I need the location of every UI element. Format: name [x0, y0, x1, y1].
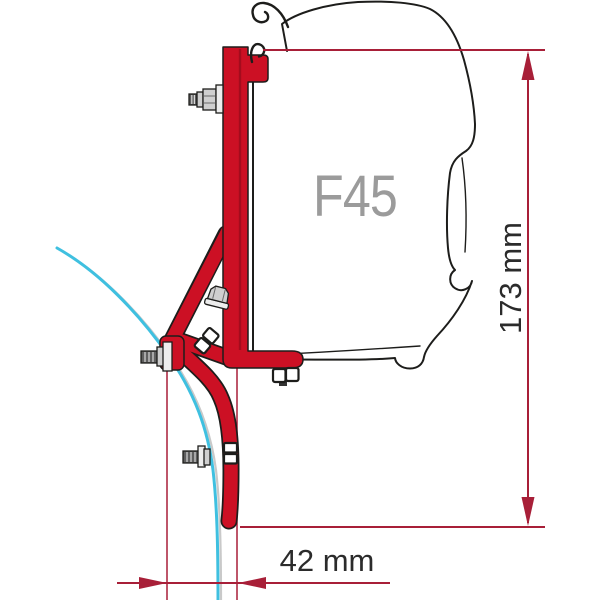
- awning-case-groove-line: [462, 158, 466, 252]
- height-arrow-up: [522, 51, 535, 80]
- diagram-canvas: 173 mm 42 mm F45: [0, 0, 600, 600]
- bottom-mounting-bolt: [273, 368, 299, 386]
- width-arrow-right: [139, 577, 167, 589]
- bracket-main-bar: [223, 47, 303, 368]
- awning-adapter-diagram: 173 mm 42 mm F45: [0, 0, 600, 600]
- height-dimension-label: 173 mm: [493, 222, 528, 334]
- width-dimension-label: 42 mm: [280, 543, 375, 578]
- wall-mounting-bolt: [141, 342, 172, 371]
- height-dimension: 173 mm: [240, 50, 545, 527]
- top-mounting-bolt: [189, 85, 223, 113]
- product-label: F45: [313, 164, 397, 229]
- width-arrow-left: [238, 577, 266, 589]
- bracket-diagonal-brace: [172, 231, 228, 340]
- height-arrow-down: [522, 497, 535, 526]
- width-dimension: 42 mm: [117, 543, 390, 589]
